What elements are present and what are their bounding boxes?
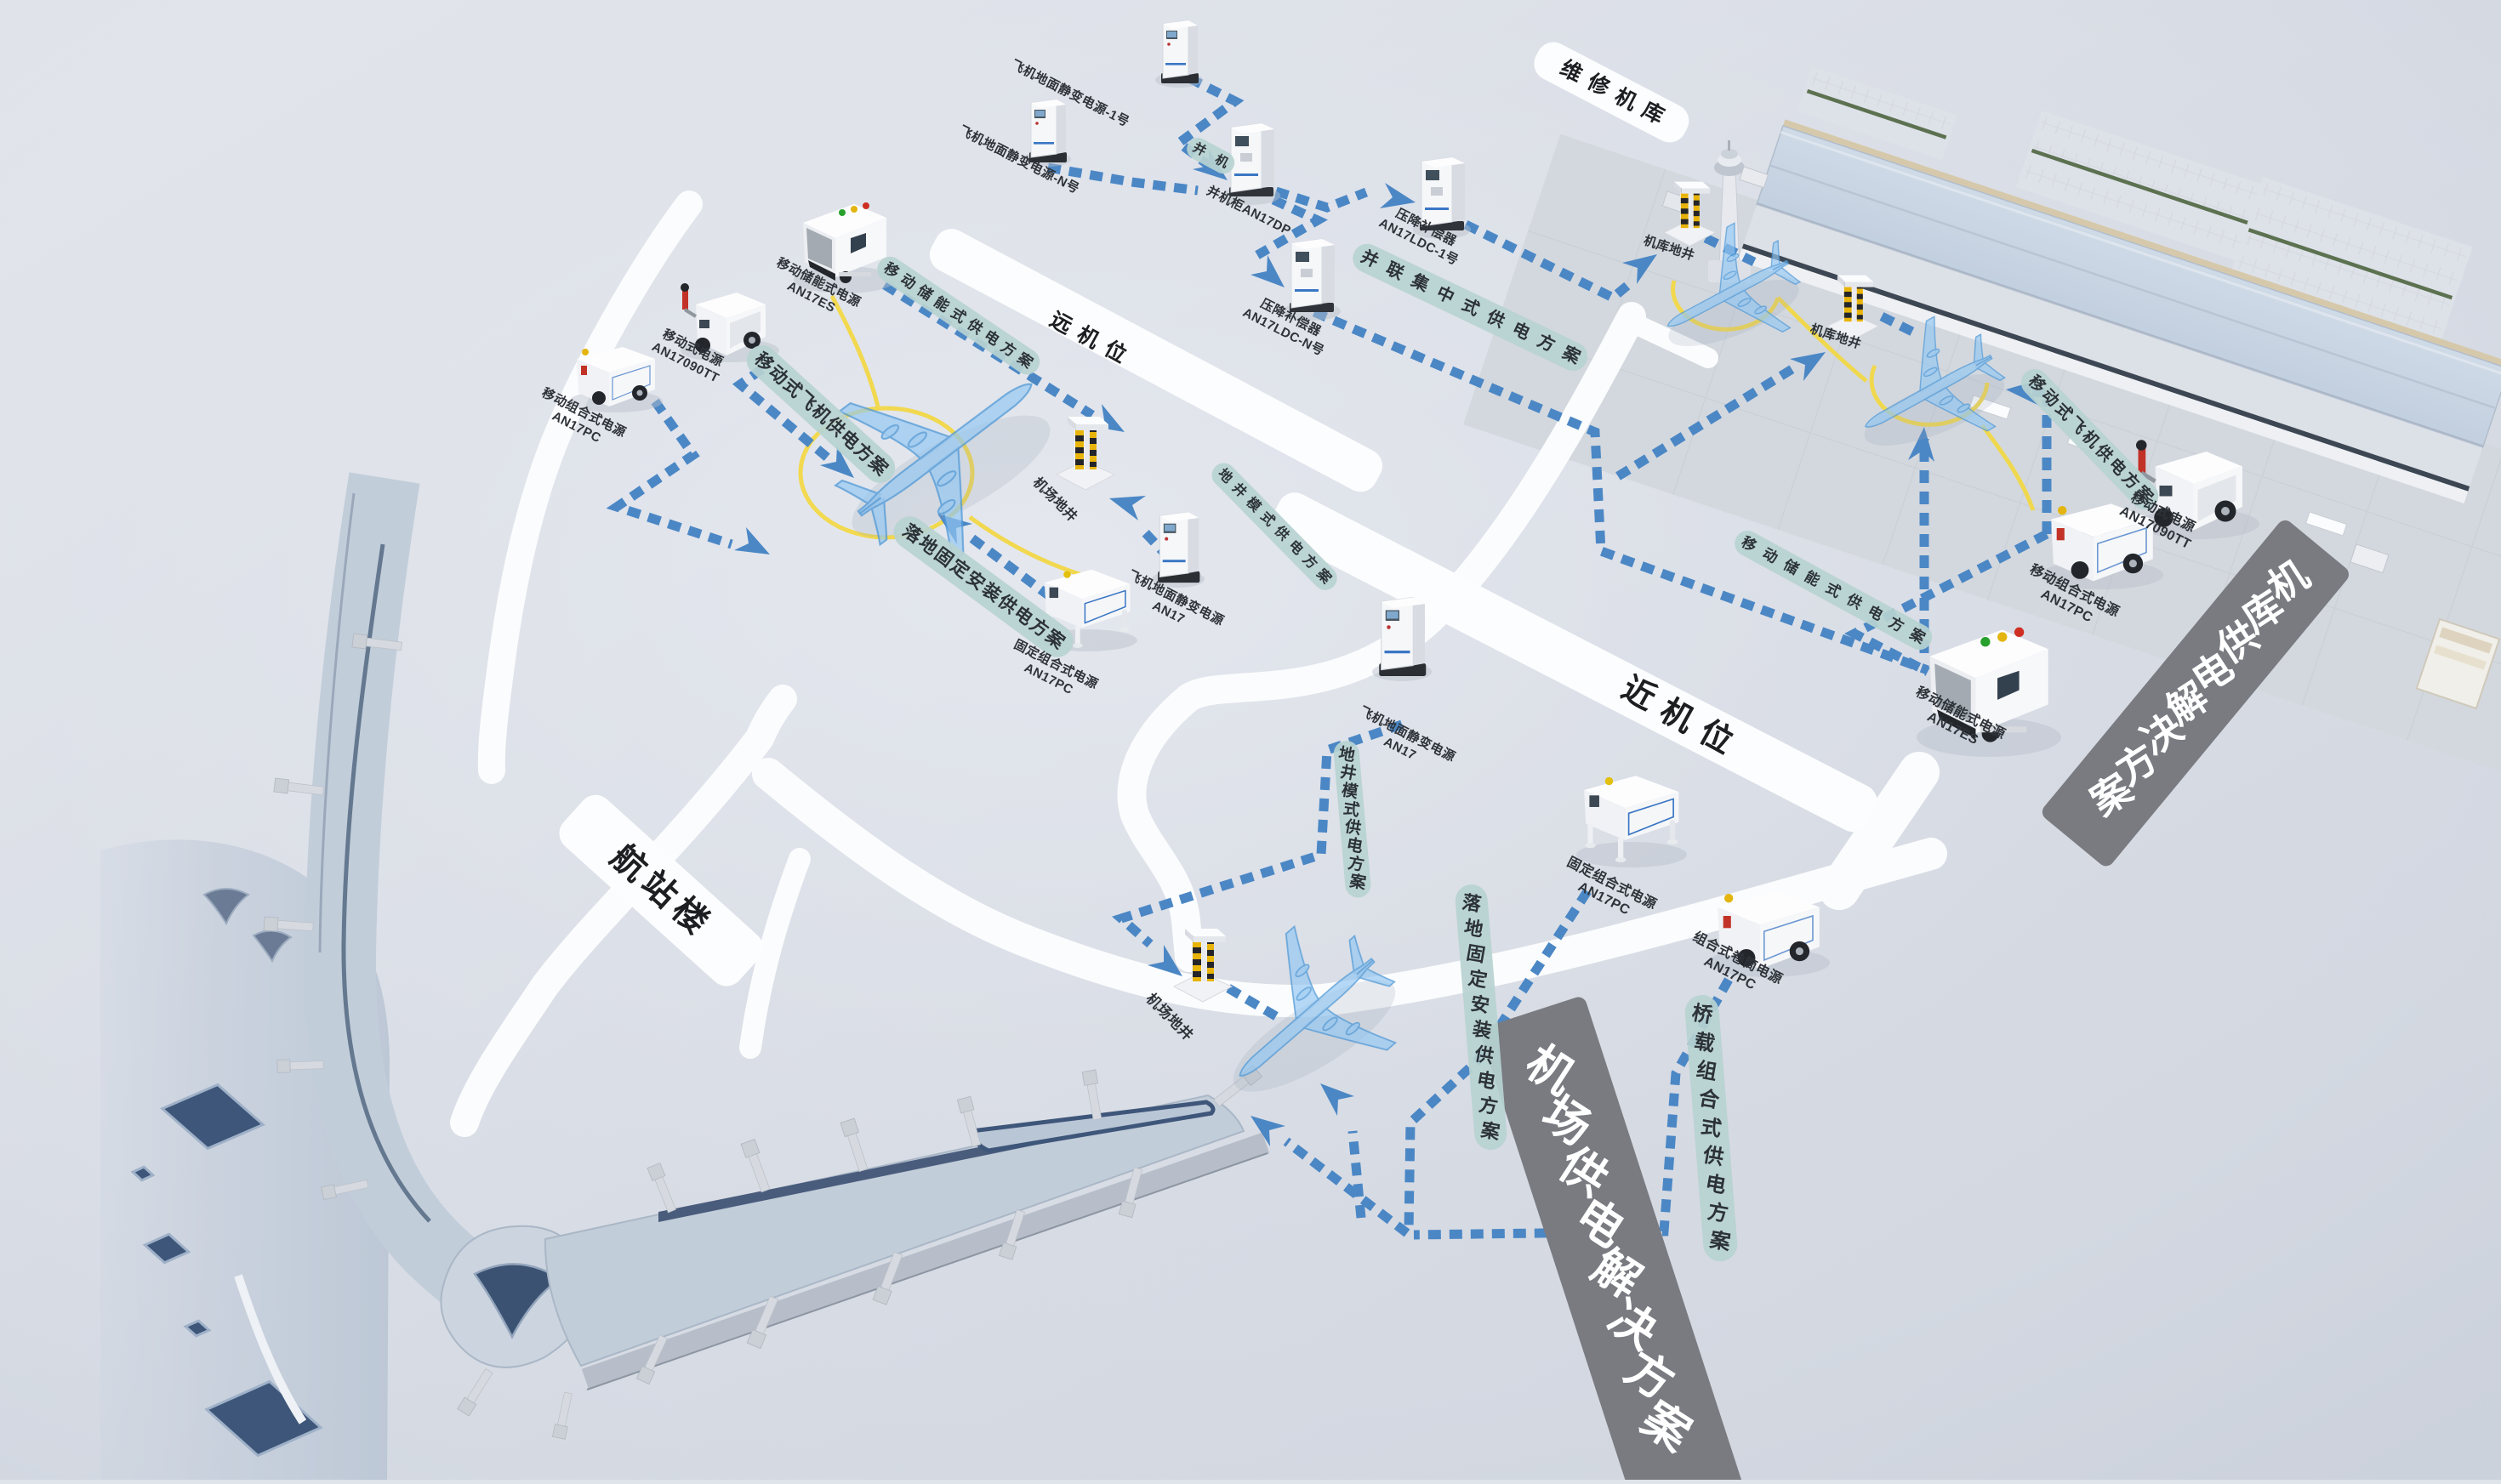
svg-text:电: 电 <box>1475 1068 1497 1092</box>
svg-text:安: 安 <box>1469 992 1491 1016</box>
svg-text:地: 地 <box>1337 743 1357 765</box>
svg-text:载: 载 <box>1692 1030 1716 1056</box>
svg-text:组: 组 <box>1695 1058 1718 1084</box>
svg-text:井: 井 <box>1339 762 1359 783</box>
svg-text:式: 式 <box>1699 1115 1723 1141</box>
svg-text:固: 固 <box>1465 941 1487 965</box>
svg-text:方: 方 <box>1347 853 1366 875</box>
svg-text:供: 供 <box>1342 816 1363 839</box>
svg-text:电: 电 <box>1345 834 1364 856</box>
svg-text:供: 供 <box>1473 1043 1495 1067</box>
svg-text:地: 地 <box>1462 917 1484 941</box>
svg-text:电: 电 <box>1704 1172 1728 1198</box>
svg-text:供: 供 <box>1701 1143 1725 1169</box>
svg-text:定: 定 <box>1467 967 1489 991</box>
svg-text:式: 式 <box>1342 798 1361 820</box>
svg-text:方: 方 <box>1706 1199 1729 1226</box>
svg-text:方: 方 <box>1478 1094 1500 1117</box>
svg-text:装: 装 <box>1471 1018 1493 1042</box>
